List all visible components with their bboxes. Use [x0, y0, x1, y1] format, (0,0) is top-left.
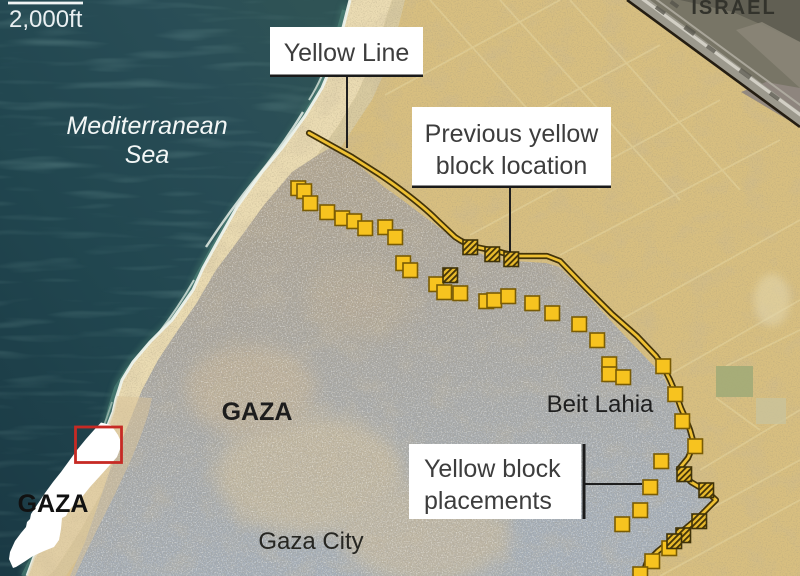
svg-text:Previous yellow: Previous yellow	[425, 120, 600, 148]
svg-text:Mediterranean: Mediterranean	[66, 112, 227, 140]
svg-text:Yellow block: Yellow block	[424, 455, 561, 483]
svg-text:ISRAEL: ISRAEL	[691, 0, 776, 19]
svg-text:Gaza City: Gaza City	[258, 528, 363, 555]
svg-text:GAZA: GAZA	[222, 398, 293, 426]
svg-text:GAZA: GAZA	[18, 490, 89, 518]
svg-text:Yellow Line: Yellow Line	[284, 39, 410, 67]
svg-text:Sea: Sea	[125, 141, 170, 169]
svg-text:2,000ft: 2,000ft	[9, 6, 83, 33]
svg-text:Beit Lahia: Beit Lahia	[547, 391, 654, 418]
svg-text:placements: placements	[424, 487, 552, 515]
svg-text:block location: block location	[436, 152, 587, 180]
